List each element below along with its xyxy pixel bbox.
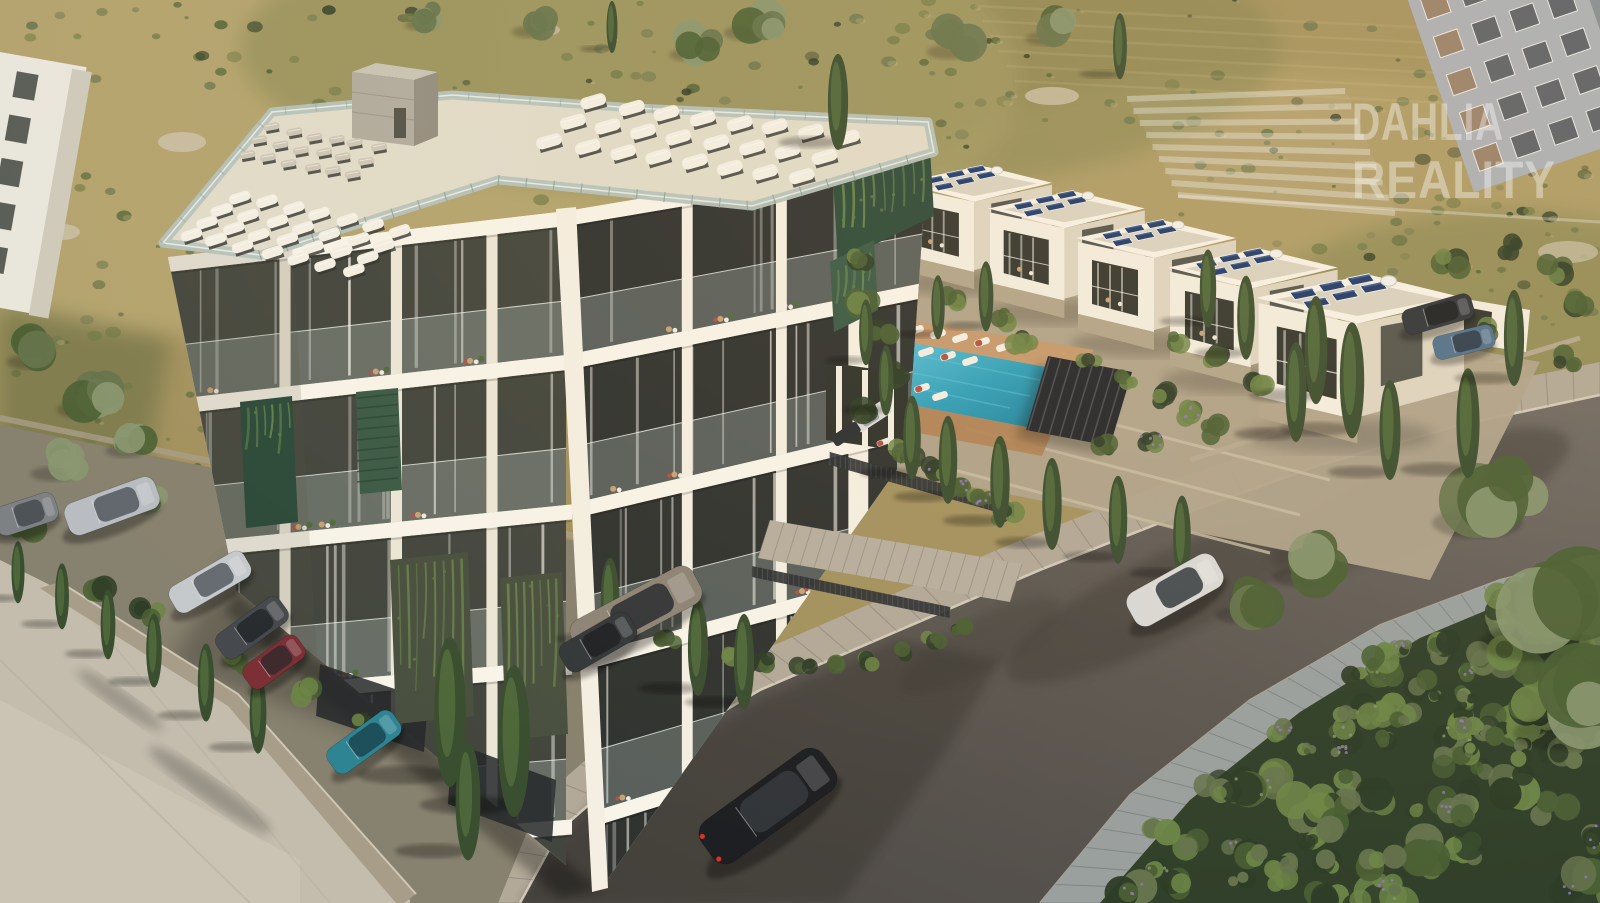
- watermark-text-line2: REALITY: [1352, 151, 1556, 210]
- render-canvas: DAHLIA REALITY: [0, 0, 1600, 903]
- watermark-text-line1: DAHLIA: [1352, 93, 1504, 152]
- architectural-render: DAHLIA REALITY: [0, 0, 1600, 903]
